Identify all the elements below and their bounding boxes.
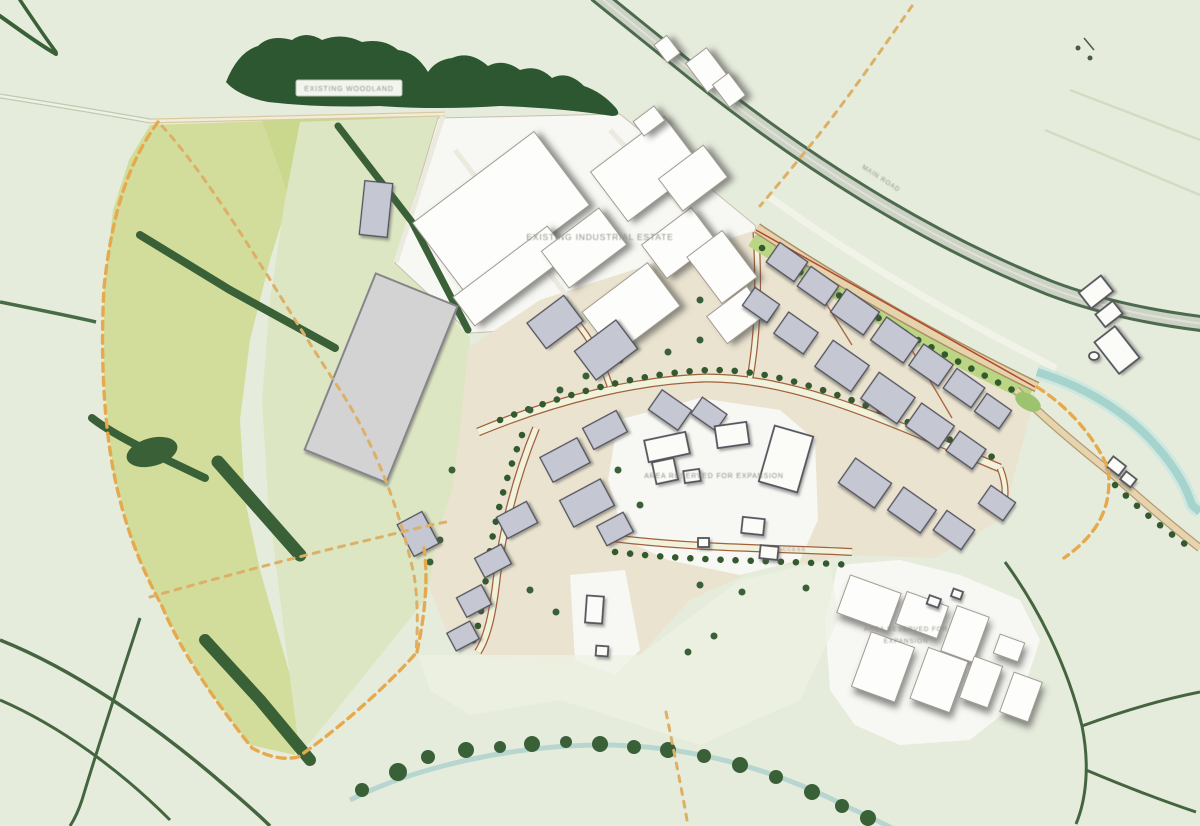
tree bbox=[557, 387, 564, 394]
tree-clump bbox=[389, 763, 407, 781]
tree bbox=[697, 337, 704, 344]
tree-clump bbox=[804, 784, 820, 800]
tree-clump bbox=[697, 749, 711, 763]
building-footprint bbox=[585, 595, 604, 623]
site-masterplan-map: EXISTING WOODLAND MAIN ROAD EXISTING IND… bbox=[0, 0, 1200, 826]
access-label: ACCESS bbox=[778, 547, 805, 553]
tree-clump bbox=[732, 757, 748, 773]
se-reserved-label-line1: AREA RESERVED FOR bbox=[864, 626, 948, 633]
tree-clump bbox=[560, 736, 572, 748]
tree-clump bbox=[355, 783, 369, 797]
tree-clump bbox=[494, 741, 506, 753]
se-reserved-label-line2: EXPANSION bbox=[884, 638, 929, 645]
tree-clump bbox=[769, 770, 783, 784]
woodland-label: EXISTING WOODLAND bbox=[304, 86, 393, 93]
building-footprint bbox=[1089, 352, 1099, 360]
tree bbox=[803, 585, 810, 592]
map-mark bbox=[1076, 46, 1081, 51]
tree-clump bbox=[592, 736, 608, 752]
tree-clump bbox=[524, 736, 540, 752]
building-footprint bbox=[359, 181, 392, 238]
building-footprint bbox=[759, 545, 778, 560]
building-footprint bbox=[652, 458, 678, 484]
tree bbox=[637, 502, 644, 509]
building-footprint bbox=[596, 646, 609, 657]
tree bbox=[697, 582, 704, 589]
building-footprint bbox=[698, 538, 709, 547]
tree-clump bbox=[458, 742, 474, 758]
tree bbox=[739, 589, 746, 596]
tree-clump bbox=[627, 740, 641, 754]
tree bbox=[449, 467, 456, 474]
estate-label: EXISTING INDUSTRIAL ESTATE bbox=[526, 232, 673, 242]
tree-clump bbox=[860, 810, 876, 826]
tree-clump bbox=[835, 799, 849, 813]
tree bbox=[527, 407, 534, 414]
tree bbox=[685, 649, 692, 656]
central-reserved-label: AREA RESERVED FOR EXPANSION bbox=[644, 473, 784, 480]
tree bbox=[583, 373, 590, 380]
tree bbox=[615, 467, 622, 474]
tree bbox=[427, 559, 434, 566]
tree bbox=[553, 609, 560, 616]
building-footprint bbox=[715, 422, 750, 448]
tree bbox=[527, 587, 534, 594]
tree bbox=[711, 633, 718, 640]
tree-clump bbox=[421, 750, 435, 764]
tree bbox=[665, 349, 672, 356]
map-mark bbox=[1088, 56, 1093, 61]
building-footprint bbox=[741, 517, 765, 535]
tree bbox=[697, 297, 704, 304]
map-canvas: EXISTING WOODLAND MAIN ROAD EXISTING IND… bbox=[0, 0, 1200, 826]
